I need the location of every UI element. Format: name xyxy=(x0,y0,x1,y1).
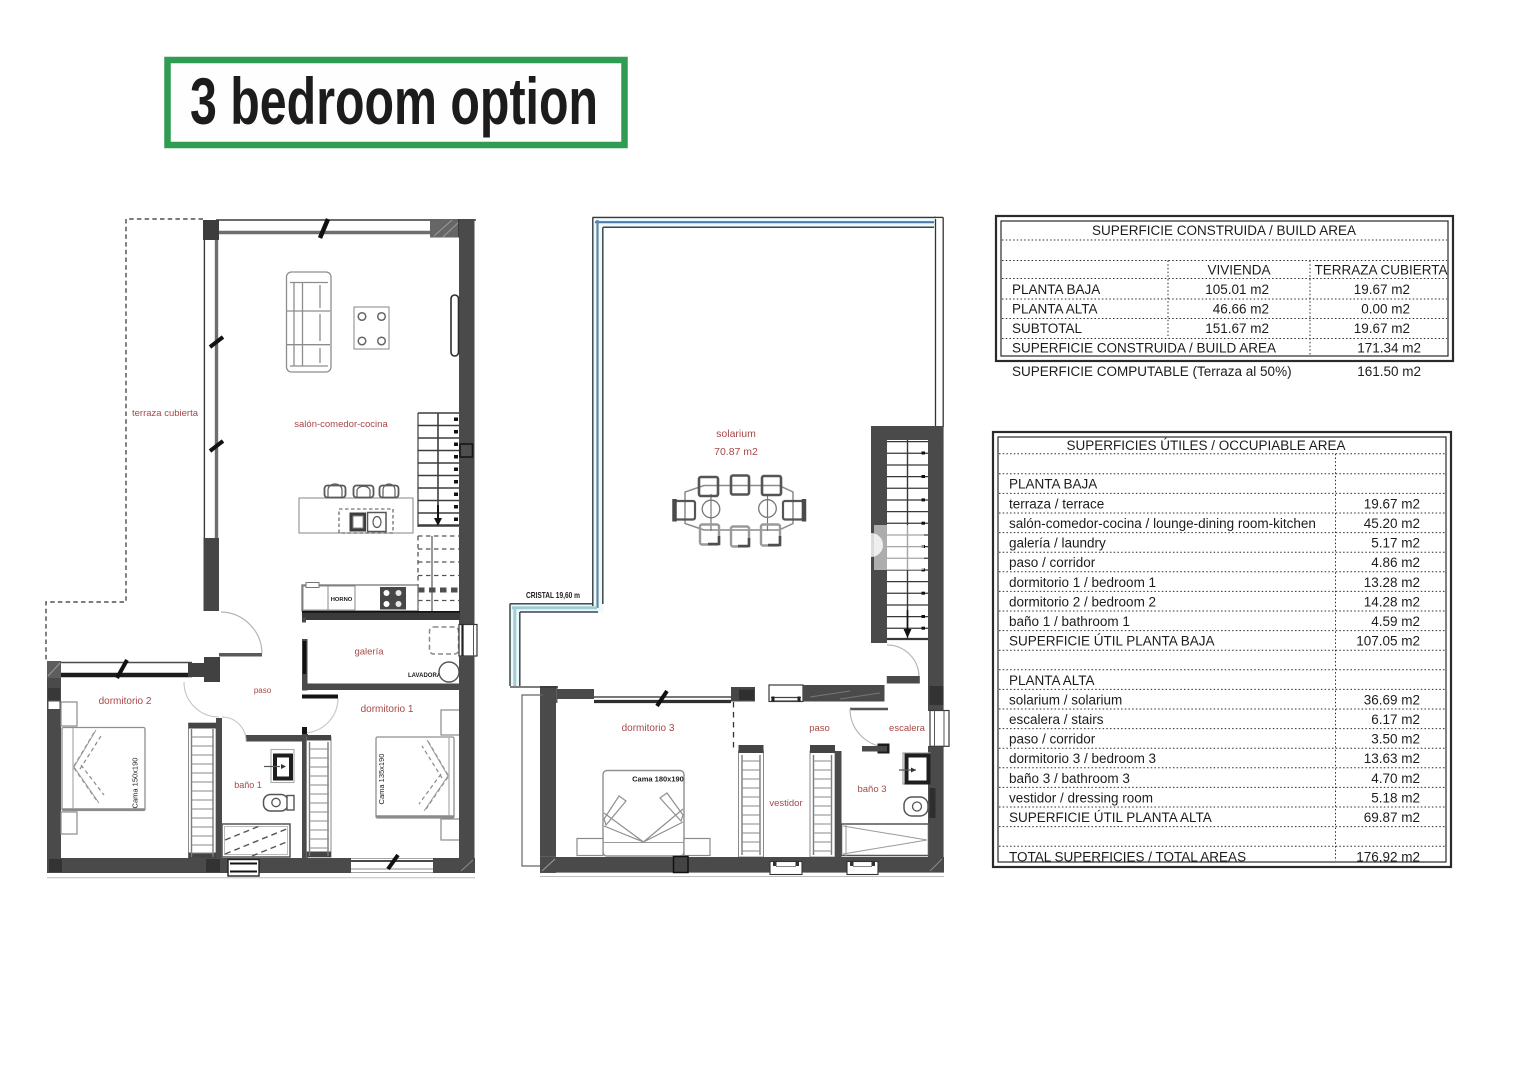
svg-text:galería: galería xyxy=(354,647,384,658)
svg-text:SUPERFICIE ÚTIL PLANTA BAJA: SUPERFICIE ÚTIL PLANTA BAJA xyxy=(1009,634,1215,649)
svg-text:paso: paso xyxy=(254,686,272,695)
svg-text:171.34 m2: 171.34 m2 xyxy=(1357,341,1421,356)
svg-text:dormitorio 1: dormitorio 1 xyxy=(361,704,414,715)
svg-text:4.59 m2: 4.59 m2 xyxy=(1371,614,1420,629)
svg-text:Cama 180x190: Cama 180x190 xyxy=(632,775,684,784)
svg-text:baño 1 / bathroom 1: baño 1 / bathroom 1 xyxy=(1009,614,1130,629)
svg-text:vestidor: vestidor xyxy=(769,798,802,809)
svg-text:45.20 m2: 45.20 m2 xyxy=(1364,516,1420,531)
svg-text:SUPERFICIE ÚTIL PLANTA ALTA: SUPERFICIE ÚTIL PLANTA ALTA xyxy=(1009,810,1212,825)
svg-text:19.67 m2: 19.67 m2 xyxy=(1354,282,1410,297)
svg-text:161.50 m2: 161.50 m2 xyxy=(1357,364,1421,379)
svg-text:terraza / terrace: terraza / terrace xyxy=(1009,496,1104,511)
svg-text:baño 3: baño 3 xyxy=(857,784,886,795)
svg-text:PLANTA BAJA: PLANTA BAJA xyxy=(1012,282,1100,297)
svg-text:0.00 m2: 0.00 m2 xyxy=(1361,302,1410,317)
svg-text:69.87 m2: 69.87 m2 xyxy=(1364,810,1420,825)
svg-text:CRISTAL 19,60 m: CRISTAL 19,60 m xyxy=(526,590,580,600)
svg-text:solarium: solarium xyxy=(716,428,756,440)
svg-text:13.63 m2: 13.63 m2 xyxy=(1364,751,1420,766)
svg-text:14.28 m2: 14.28 m2 xyxy=(1364,594,1420,609)
svg-text:70.87 m2: 70.87 m2 xyxy=(714,446,758,458)
svg-text:5.17 m2: 5.17 m2 xyxy=(1371,536,1420,551)
svg-text:4.70 m2: 4.70 m2 xyxy=(1371,771,1420,786)
svg-text:paso / corridor: paso / corridor xyxy=(1009,555,1096,570)
svg-text:TOTAL SUPERFICIES / TOTAL AREA: TOTAL SUPERFICIES / TOTAL AREAS xyxy=(1009,849,1246,864)
svg-text:105.01 m2: 105.01 m2 xyxy=(1205,282,1269,297)
svg-text:Cama 150x190: Cama 150x190 xyxy=(131,758,140,809)
svg-text:SUPERFICIE COMPUTABLE (Terraza: SUPERFICIE COMPUTABLE (Terraza al 50%) xyxy=(1012,364,1292,379)
svg-text:3 bedroom option: 3 bedroom option xyxy=(190,64,598,138)
svg-text:galería / laundry: galería / laundry xyxy=(1009,536,1106,551)
svg-text:terraza cubierta: terraza cubierta xyxy=(132,408,199,419)
svg-text:escalera: escalera xyxy=(889,723,926,734)
svg-text:PLANTA BAJA: PLANTA BAJA xyxy=(1009,476,1097,491)
svg-text:solarium / solarium: solarium / solarium xyxy=(1009,692,1122,707)
svg-text:VIVIENDA: VIVIENDA xyxy=(1207,263,1270,278)
svg-text:dormitorio 3: dormitorio 3 xyxy=(622,723,675,734)
svg-text:SUPERFICIES ÚTILES / OCCUPIABL: SUPERFICIES ÚTILES / OCCUPIABLE AREA xyxy=(1066,438,1345,453)
svg-text:3.50 m2: 3.50 m2 xyxy=(1371,732,1420,747)
svg-text:dormitorio 3 / bedroom 3: dormitorio 3 / bedroom 3 xyxy=(1009,751,1156,766)
svg-text:PLANTA ALTA: PLANTA ALTA xyxy=(1012,302,1098,317)
svg-text:151.67 m2: 151.67 m2 xyxy=(1205,321,1269,336)
svg-text:escalera / stairs: escalera / stairs xyxy=(1009,712,1104,727)
svg-text:6.17 m2: 6.17 m2 xyxy=(1371,712,1420,727)
svg-text:36.69 m2: 36.69 m2 xyxy=(1364,692,1420,707)
svg-text:4.86 m2: 4.86 m2 xyxy=(1371,555,1420,570)
svg-text:PLANTA ALTA: PLANTA ALTA xyxy=(1009,673,1095,688)
svg-text:TERRAZA CUBIERTA: TERRAZA CUBIERTA xyxy=(1314,263,1447,278)
svg-text:46.66 m2: 46.66 m2 xyxy=(1213,302,1269,317)
svg-text:13.28 m2: 13.28 m2 xyxy=(1364,575,1420,590)
svg-text:dormitorio 2: dormitorio 2 xyxy=(99,696,152,707)
svg-text:19.67 m2: 19.67 m2 xyxy=(1364,496,1420,511)
svg-text:5.18 m2: 5.18 m2 xyxy=(1371,790,1420,805)
svg-text:LAVADORA: LAVADORA xyxy=(408,673,442,679)
svg-text:dormitorio 2 / bedroom 2: dormitorio 2 / bedroom 2 xyxy=(1009,594,1156,609)
svg-text:SUPERFICIE CONSTRUIDA / BUILD: SUPERFICIE CONSTRUIDA / BUILD AREA xyxy=(1092,223,1356,238)
svg-text:salón-comedor-cocina / lounge-: salón-comedor-cocina / lounge-dining roo… xyxy=(1009,516,1316,531)
svg-text:176.92 m2: 176.92 m2 xyxy=(1356,849,1420,864)
svg-text:salón-comedor-cocina: salón-comedor-cocina xyxy=(294,419,388,430)
svg-text:baño 1: baño 1 xyxy=(234,780,262,790)
svg-text:Cama 135x190: Cama 135x190 xyxy=(377,754,386,805)
svg-text:19.67 m2: 19.67 m2 xyxy=(1354,321,1410,336)
svg-text:107.05 m2: 107.05 m2 xyxy=(1356,634,1420,649)
svg-text:HORNO: HORNO xyxy=(331,597,353,603)
svg-text:dormitorio 1 / bedroom 1: dormitorio 1 / bedroom 1 xyxy=(1009,575,1156,590)
svg-text:vestidor / dressing room: vestidor / dressing room xyxy=(1009,790,1153,805)
svg-text:paso: paso xyxy=(809,723,830,734)
svg-text:SUPERFICIE CONSTRUIDA / BUILD: SUPERFICIE CONSTRUIDA / BUILD AREA xyxy=(1012,341,1276,356)
svg-text:baño 3 / bathroom 3: baño 3 / bathroom 3 xyxy=(1009,771,1130,786)
svg-text:SUBTOTAL: SUBTOTAL xyxy=(1012,321,1083,336)
svg-text:paso / corridor: paso / corridor xyxy=(1009,732,1096,747)
